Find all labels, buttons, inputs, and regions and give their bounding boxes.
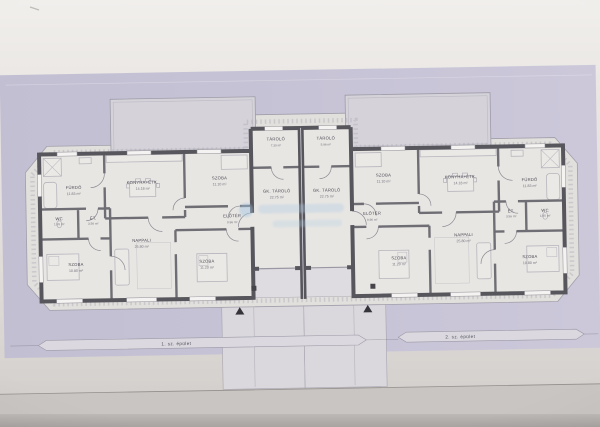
room-label-et: ÉT. (90, 216, 97, 221)
room-label-nappali: NAPPALI (132, 238, 151, 243)
room-area-konyha: 14.18 m² (453, 181, 468, 185)
room-label-eloter: ELŐTÉR (363, 211, 381, 216)
room-label-tarolo-2: TÁROLÓ (317, 135, 336, 140)
room-label-szoba-1: SZOBA (212, 175, 227, 180)
paper-mark (30, 7, 39, 10)
room-area-eloter: 9.96 m² (227, 220, 238, 224)
room-area-tarolo-2: 5.96 m² (321, 142, 332, 146)
room-label-eloter: ELŐTÉR (223, 213, 241, 218)
room-label-szoba-1: SZOBA (376, 172, 391, 177)
watermark-text-blob (258, 203, 344, 213)
room-label-tarolo-1: TÁROLÓ (267, 136, 286, 141)
room-area-furdo: 11.83 m² (523, 184, 538, 188)
right-building-terrace (345, 93, 491, 150)
room-area-szoba-3: 11.20 m² (392, 262, 407, 266)
scanned-floorplan-page: { "plan": { "left_apartment": { "rooms":… (0, 0, 600, 427)
building-2-label: 2. sz. épület (445, 334, 475, 340)
porch-post (370, 284, 375, 289)
room-label-et: ÉT. (508, 208, 515, 213)
room-area-wc: 1.95 m² (540, 214, 551, 218)
room-area-konyha: 14.18 m² (136, 187, 151, 191)
room-label-garage-2: GK. TÁROLÓ (313, 187, 341, 192)
tilted-page: 1. sz. épület 2. sz. épület FÜRDŐ 11.83 … (0, 65, 600, 427)
room-area-tarolo-1: 7.30 m² (271, 143, 282, 147)
room-label-szoba-3: SZOBA (391, 255, 406, 260)
floorplan-photo: 1. sz. épület 2. sz. épület FÜRDŐ 11.83 … (0, 0, 600, 427)
room-label-nappali: NAPPALI (454, 232, 473, 237)
table-surface (0, 414, 600, 427)
watermark-text-blob (272, 219, 342, 227)
room-area-eloter: 9.96 m² (367, 218, 378, 222)
room-label-szoba-3: SZOBA (199, 259, 214, 264)
room-label-szoba-2: SZOBA (68, 262, 83, 267)
building-1-label: 1. sz. épület (161, 341, 191, 347)
room-area-et: 3.56 m² (506, 214, 517, 218)
room-label-konyha: KONYHA+ÉTK. (445, 174, 477, 180)
room-area-szoba-1: 11.10 m² (213, 182, 228, 186)
room-area-garage-2: 22.75 m² (320, 194, 335, 198)
room-area-furdo: 11.83 m² (67, 192, 82, 196)
room-label-szoba-2: SZOBA (522, 254, 537, 259)
room-label-furdo: FÜRDŐ (66, 185, 83, 190)
room-label-garage-1: GK. TÁROLÓ (263, 188, 291, 193)
left-building-terrace (110, 97, 256, 154)
floorplan-drawing: 1. sz. épület 2. sz. épület FÜRDŐ 11.83 … (0, 0, 600, 427)
room-area-szoba-3: 11.20 m² (200, 265, 215, 269)
room-label-konyha: KONYHA+ÉTK. (127, 179, 159, 185)
porch-post (251, 286, 256, 291)
room-area-nappali: 25.80 m² (135, 245, 150, 249)
room-area-szoba-2: 10.80 m² (523, 261, 538, 265)
room-area-wc: 1.95 m² (54, 222, 65, 226)
room-area-szoba-2: 10.80 m² (69, 269, 84, 273)
room-label-furdo: FÜRDŐ (522, 177, 539, 182)
room-area-garage-1: 22.75 m² (270, 195, 285, 199)
room-area-nappali: 25.80 m² (456, 239, 471, 243)
room-area-szoba-1: 11.10 m² (377, 179, 392, 183)
room-area-et: 3.56 m² (88, 222, 99, 226)
room-label-wc: WC (541, 208, 548, 213)
room-label-wc: WC (55, 216, 62, 221)
